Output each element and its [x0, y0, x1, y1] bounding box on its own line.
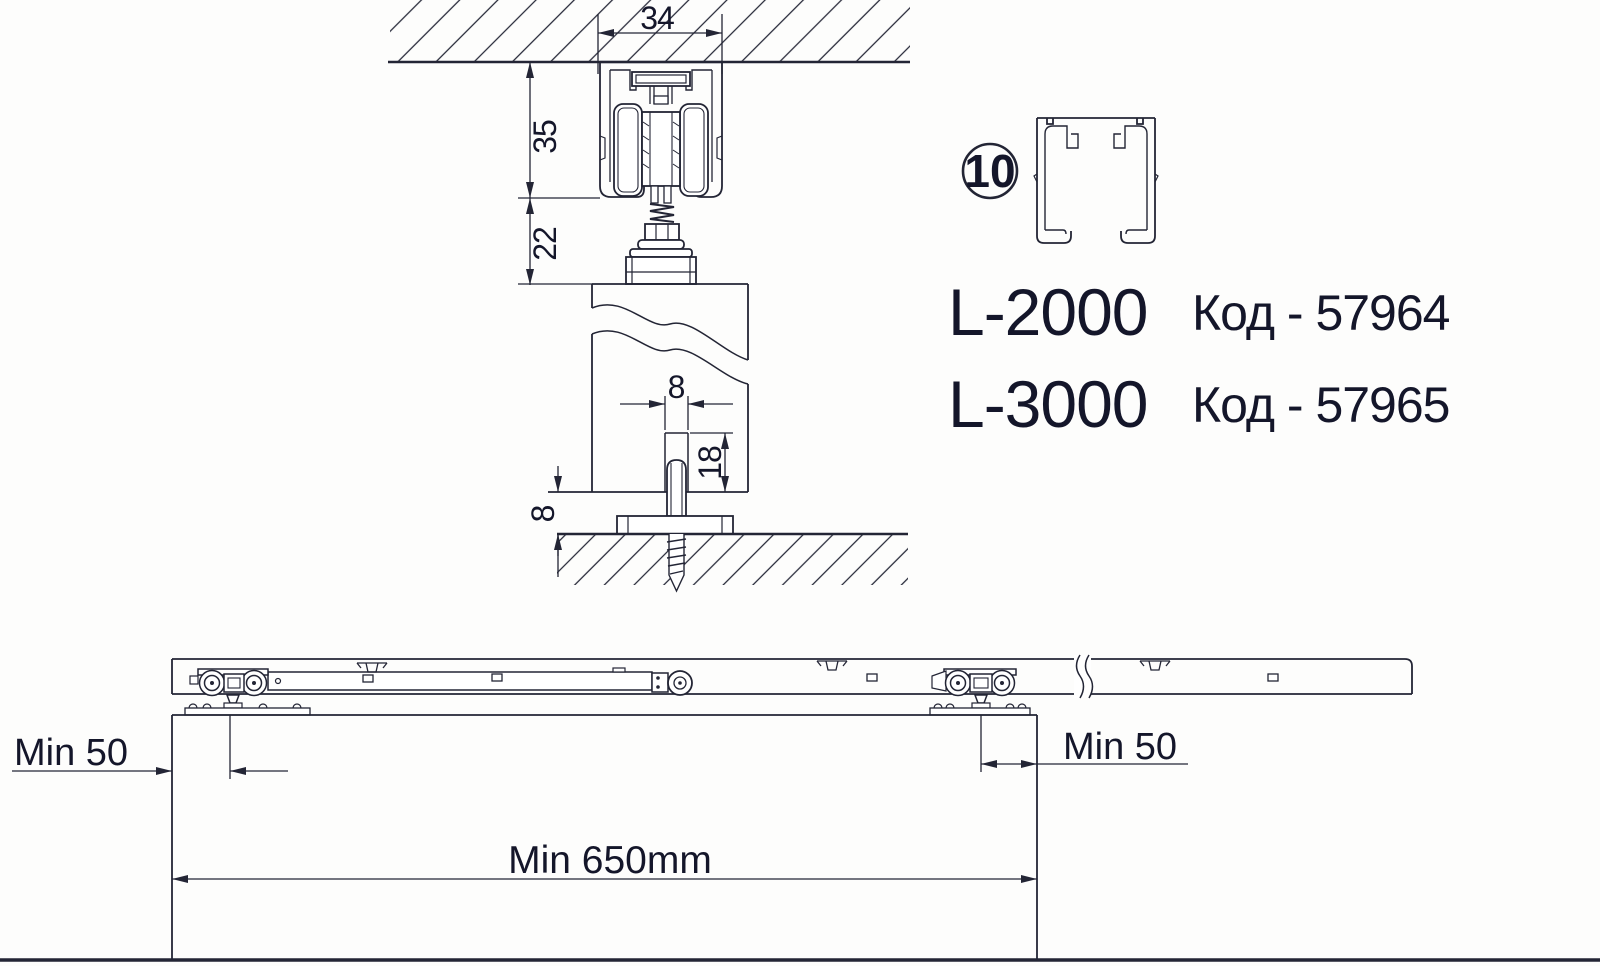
door-panel-side: [172, 715, 1037, 960]
soft-close-damper-bar: [268, 668, 692, 695]
floor-hatch: [557, 534, 908, 585]
suspension-bolt-assembly: [626, 186, 696, 284]
callout-number-label: 10: [964, 145, 1015, 197]
product-model-1: L-2000: [948, 275, 1148, 349]
dim-min-door-width-label: Min 650mm: [508, 839, 712, 882]
dim-groove-width-label: 8: [668, 369, 685, 405]
clip-2: [817, 661, 847, 670]
cross-section-view: 34 35 22 8 18 8: [388, 0, 910, 591]
dim-min-offset-left-label: Min 50: [14, 732, 128, 774]
product-model-2: L-3000: [948, 367, 1148, 441]
product-code-2: Код - 57965: [1192, 377, 1449, 433]
product-codes: L-2000 Код - 57964 L-3000 Код - 57965: [948, 275, 1450, 441]
dim-track-height-label: 35: [527, 120, 563, 154]
dim-track-width-label: 34: [640, 0, 674, 36]
roller-carriage-right: [930, 669, 1030, 715]
clip-3: [1140, 661, 1170, 670]
sliding-door-hardware-drawing: 34 35 22 8 18 8 10: [0, 0, 1600, 966]
dim-groove-depth-label: 18: [692, 446, 728, 480]
door-bracket-left: [185, 704, 310, 715]
side-elevation-view: Min 50 Min 50 Min 650mm: [0, 655, 1600, 960]
spring: [650, 204, 674, 222]
dim-min-offset-right-label: Min 50: [1063, 726, 1177, 768]
profile-legend: 10: [963, 118, 1158, 243]
roller-carriage-front: [614, 72, 708, 196]
side-dimension-labels: Min 50 Min 50 Min 650mm: [14, 726, 1177, 882]
technical-drawing-page: 34 35 22 8 18 8 10: [0, 0, 1600, 966]
product-code-1: Код - 57964: [1192, 285, 1450, 341]
dim-floor-gap-label: 8: [525, 505, 561, 522]
guide-pin: [667, 460, 686, 516]
floor-guide-assembly: [557, 460, 908, 591]
track-profile-icon: [1034, 118, 1158, 243]
dim-clearance-top-label: 22: [527, 227, 563, 261]
clip-1: [357, 663, 387, 672]
